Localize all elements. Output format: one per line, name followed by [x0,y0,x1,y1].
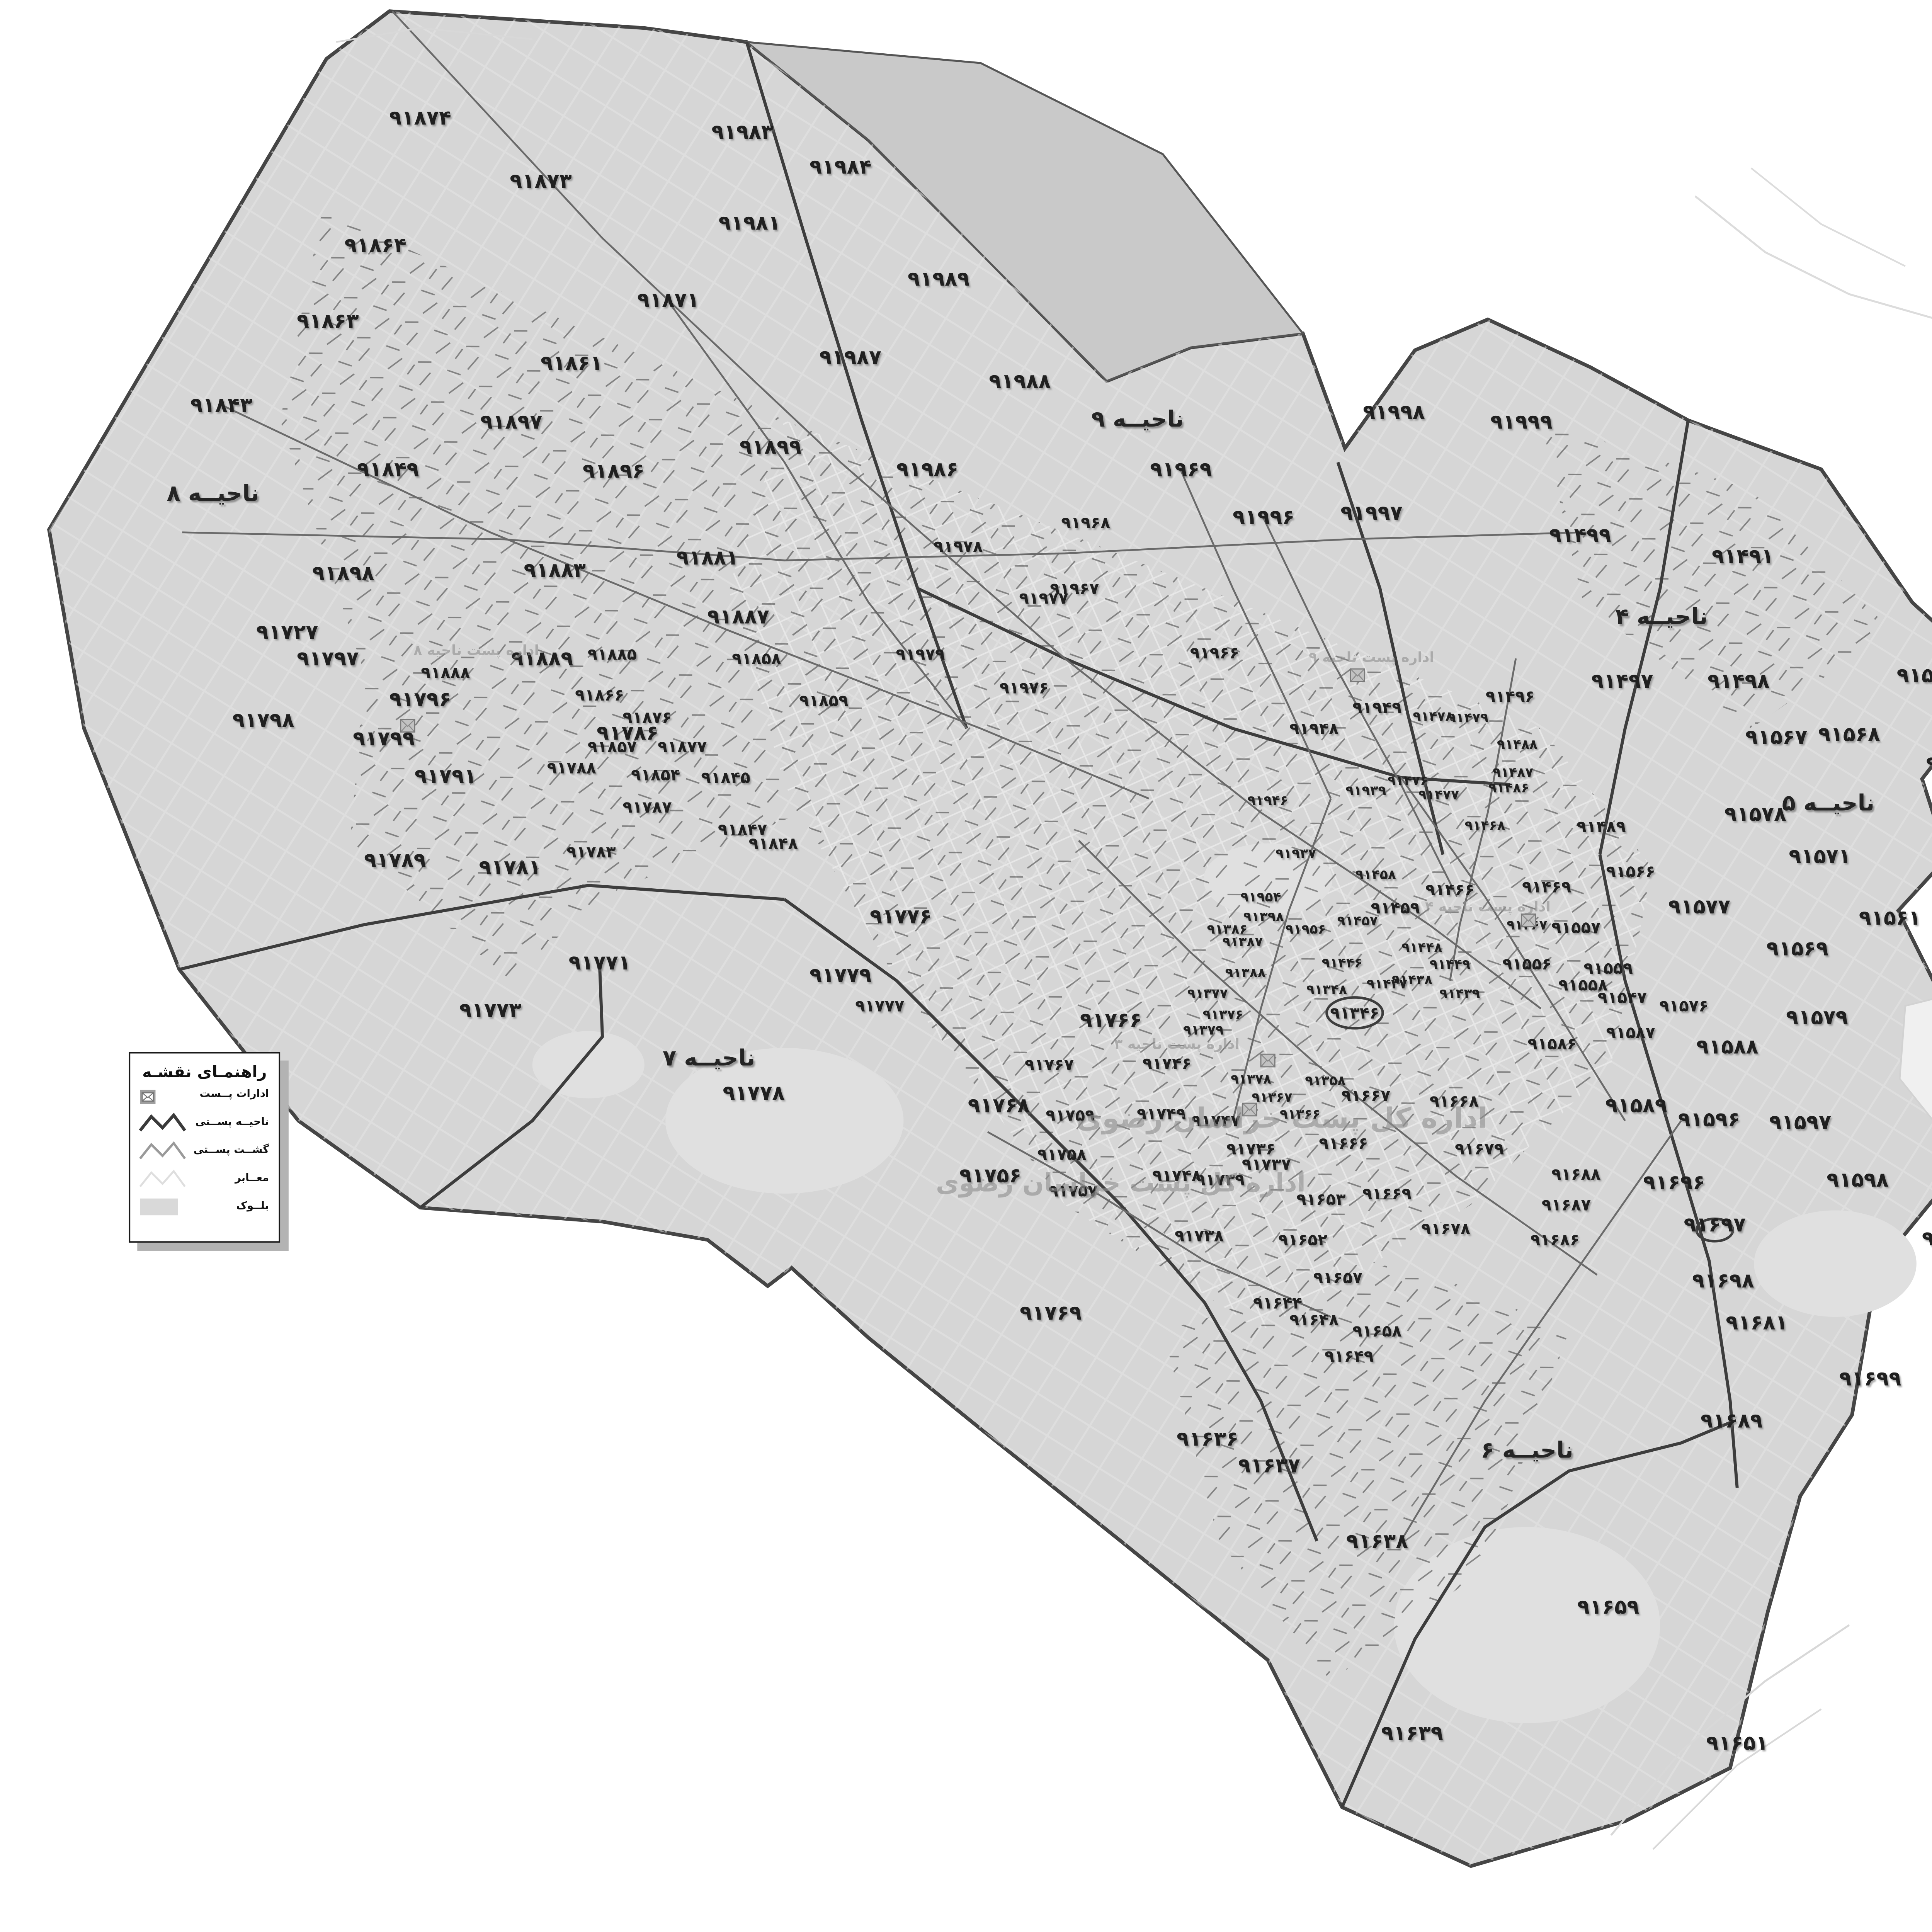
zone-code-label: ۹۱۵۸۶ [1528,1034,1577,1054]
zone-code-label: ۹۱۴۸۶ [1488,781,1529,796]
zone-code-label: ۹۱۳۷۸ [1231,1072,1271,1088]
zone-code-label: ۹۱۵۸۳ [1926,754,1932,776]
zone-code-label: ۹۱۴۴۶ [1322,956,1362,971]
zone-code-label: ۹۱۸۷۴ [389,108,451,130]
post-office-marker [399,713,416,739]
zone-code-label: ۹۱۹۷۷ [1019,588,1068,608]
zone-code-label: ۹۱۶۵۷ [1313,1268,1362,1287]
zone-code-label: ۹۱۸۹۷ [480,412,542,434]
district-boundary-line-icon [139,1112,186,1139]
zone-code-label: ۹۱۶۷۸ [1421,1219,1470,1238]
zone-code-label: ۹۱۹۷۶ [1000,678,1049,698]
zone-code-label: ۹۱۸۴۹ [357,459,419,482]
zone-code-label: ۹۱۸۹۹ [740,437,801,459]
legend-item-postal-route: گشــت پســتی [130,1138,279,1166]
zone-code-label: ۹۱۹۸۱ [718,213,780,235]
zone-code-label: ۹۱۵۶۷ [1745,727,1807,750]
zone-code-label: ۹۱۶۶۶ [1319,1133,1368,1153]
zone-code-label: ۹۱۸۸۵ [588,645,637,664]
zone-code-label: ۹۱۶۳۷ [1238,1456,1300,1478]
watermark-text: اداره پست ناحیه ۹ [1309,651,1434,666]
zone-code-label: ۹۱۹۴۶ [1248,794,1288,809]
zone-code-label: ۹۱۴۹۷ [1591,671,1653,694]
zone-code-label: ۹۱۵۶۸ [1818,724,1880,747]
zone-code-label: ۹۱۸۴۸ [749,833,798,853]
zone-code-label: ۹۱۶۸۶ [1531,1230,1580,1250]
zone-code-label: ۹۱۸۹۶ [583,461,645,483]
zone-code-label: ۹۱۶۳۸ [1346,1531,1408,1554]
zone-code-label: ۹۱۷۸۸ [547,758,596,777]
zone-code-label: ۹۱۷۲۷ [256,622,318,645]
zone-code-label: ۹۱۹۳۷ [1276,847,1316,862]
watermark-text: اداره کل پست خراسان رضوی [936,1169,1306,1199]
zone-code-label: ۹۱۵۶۶ [1606,862,1655,881]
zone-code-label: ۹۱۶۹۸ [1692,1270,1754,1293]
watermark-text: اداره پست ناحیه ۸ [413,644,539,659]
zone-code-label: ۹۱۹۹۶ [1233,507,1294,529]
map-labels-layer: ۹۱۸۷۴۹۱۸۷۳۹۱۸۶۴۹۱۸۶۳۹۱۸۴۳۹۱۸۶۱۹۱۸۹۷۹۱۸۴۹… [0,0,1932,1932]
legend-item-post-offices: ادارات پــست [130,1082,279,1110]
zone-code-label: ۹۱۷۷۷ [855,996,904,1016]
legend: راهنمـای نقشـه ادارات پــست ناحیــه پســ… [129,1052,281,1243]
zone-code-label: ۹۱۵۹۸ [1827,1170,1888,1192]
legend-title: راهنمـای نقشـه [130,1062,279,1082]
zone-code-label: ۹۱۴۹۱ [1712,546,1774,569]
zone-code-label: ۹۱۴۵۹ [1371,898,1420,918]
zone-code-label: ۹۱۵۷۷ [1668,896,1730,919]
zone-code-label: ۹۱۳۷۶ [1203,1008,1243,1024]
zone-code-label: ۹۱۵۷۸ [1725,804,1786,827]
zone-code-label: ۹۱۸۷۷ [658,737,707,757]
zone-code-label: ۹۱۴۹۸ [1708,671,1769,694]
zone-code-label: ۹۱۷۶۷ [1025,1055,1074,1075]
zone-code-label: ۹۱۹۸۷ [819,347,881,370]
zone-code-label: ۹۱۴۳۹ [1439,987,1480,1002]
zone-code-label: ۹۱۶۳۹ [1381,1723,1443,1745]
zone-code-label: ۹۱۷۶۹ [1020,1303,1082,1325]
zone-code-label: ۹۱۵۸۹ [1605,1095,1667,1118]
district-label: ناحیــه ۴ [1615,603,1708,630]
post-office-icon [139,1084,157,1111]
postal-route-line-icon [139,1140,186,1167]
zone-code-label: ۹۱۳۹۸ [1243,910,1284,925]
zone-code-label: ۹۱۴۸۷ [1493,765,1533,781]
zone-code-label: ۹۱۶۶۹ [1362,1184,1412,1204]
zone-code-label: ۹۱۷۷۶ [870,906,932,929]
zone-code-label: ۹۱۵۷۶ [1659,996,1708,1016]
zone-code-label: ۹۱۴۷۹ [1448,711,1488,726]
zone-code-label: ۹۱۶۸۸ [1551,1164,1600,1184]
zone-code-label: ۹۱۹۷۹ [896,645,945,664]
zone-code-label: ۹۱۸۵۸ [732,649,781,668]
zone-code-label: ۹۱۶۴۹ [1325,1346,1374,1366]
zone-code-label: ۹۱۹۵۶ [1285,922,1326,938]
post-office-marker [1259,1047,1276,1074]
zone-code-label: ۹۱۹۵۴ [1240,890,1281,906]
zone-code-label: ۹۱۹۶۹ [1150,459,1212,482]
zone-code-label: ۹۱۳۴۶ [1330,1003,1379,1023]
zone-code-label: ۹۱۷۴۶ [1142,1053,1191,1073]
zone-code-label: ۹۱۴۸۹ [1577,817,1626,837]
watermark-text: اداره کل پست خراسان رضوی [1077,1101,1488,1135]
zone-code-label: ۹۱۴۶۸ [1465,819,1505,834]
zone-code-label: ۹۱۳۴۸ [1306,983,1347,998]
district-label: ناحیــه ۸ [167,480,259,507]
post-office-marker [1241,1096,1258,1123]
zone-code-label: ۹۱۶۸۹ [1701,1411,1762,1433]
zone-code-label: ۹۱۸۵۹ [799,690,848,710]
zone-code-label: ۹۱۷۵۸ [1037,1145,1087,1164]
zone-code-label: ۹۱۸۶۴ [344,235,406,258]
zone-code-label: ۹۱۸۷۱ [637,290,699,312]
zone-code-label: ۹۱۹۹۸ [1363,402,1425,425]
zone-code-label: ۹۱۹۸۶ [896,459,958,482]
zone-code-label: ۹۱۵۸۷ [1606,1023,1655,1043]
zone-code-label: ۹۱۶۸۱ [1726,1313,1787,1335]
zone-code-label: ۹۱۸۸۷ [707,607,769,629]
zone-code-label: ۹۱۹۶۶ [1190,643,1239,663]
zone-code-label: ۹۱۹۹۹ [1490,412,1552,434]
zone-code-label: ۹۱۸۹۸ [312,563,374,585]
zone-code-label: ۹۱۴۴۸ [1401,941,1442,956]
zone-code-label: ۹۱۴۷۷ [1418,788,1459,803]
zone-code-label: ۹۱۷۶۶ [1080,1010,1142,1032]
zone-code-label: ۹۱۷۶۸ [968,1095,1030,1118]
street-line-icon [139,1168,186,1195]
zone-code-label: ۹۱۷۹۶ [389,689,451,712]
zone-code-label: ۹۱۴۹۶ [1486,687,1535,706]
zone-code-label: ۹۱۸۶۶ [575,685,624,705]
zone-code-label: ۹۱۷۸۷ [622,797,672,817]
zone-code-label: ۹۱۴۶۹ [1522,877,1571,897]
zone-code-label: ۹۱۴۷۸ [1413,709,1453,725]
zone-code-label: ۹۱۷۳۸ [1175,1226,1224,1245]
zone-code-label: ۹۱۷۸۳ [566,842,616,862]
zone-code-label: ۹۱۶۵۲ [1278,1230,1327,1250]
zone-code-label: ۹۱۴۴۹ [1430,957,1470,973]
zone-code-label: ۹۱۴۶۶ [1425,880,1475,900]
district-label: ناحیــه ۵ [1782,789,1875,816]
legend-item-postal-district: ناحیــه پســتی [130,1109,279,1138]
zone-code-label: ۹۱۹۸۳ [711,122,773,144]
zone-code-label: ۹۱۵۶۹ [1766,939,1828,961]
zone-code-label: ۹۱۴۷۶ [1388,774,1428,789]
zone-code-label: ۹۱۳۵۸ [1305,1074,1345,1089]
zone-code-label: ۹۱۶۵۸ [1352,1321,1401,1341]
zone-code-label: ۹۱۹۶۸ [1061,513,1110,532]
zone-code-label: ۹۱۶۵۹ [1577,1597,1639,1619]
zone-code-label: ۹۱۶۷۹ [1455,1139,1504,1159]
zone-code-label: ۹۱۷۸۶ [597,723,658,745]
zone-code-label: ۹۱۸۷۳ [510,171,571,193]
zone-code-label: ۹۱۸۴۳ [190,395,252,417]
zone-code-label: ۹۱۸۴۵ [701,768,750,787]
post-office-marker [1520,907,1537,934]
zone-code-label: ۹۱۶۳۶ [1177,1429,1238,1451]
zone-code-label: ۹۱۴۵۸ [1355,868,1396,883]
zone-code-label: ۹۱۵۹۹ [1922,1229,1932,1251]
zone-code-label: ۹۱۶۴۸ [1289,1310,1338,1330]
zone-code-label: ۹۱۵۹۶ [1678,1109,1740,1132]
zone-code-label: ۹۱۶۵۱ [1706,1733,1768,1755]
zone-code-label: ۹۱۵۶۱ [1859,908,1921,930]
zone-code-label: ۹۱۳۸۸ [1225,966,1266,981]
zone-code-label: ۹۱۵۷۱ [1789,846,1850,869]
zone-code-label: ۹۱۸۶۱ [541,353,602,376]
zone-code-label: ۹۱۹۸۴ [810,157,871,179]
zone-code-label: ۹۱۹۹۷ [1340,503,1402,526]
zone-code-label: ۹۱۸۵۴ [631,765,680,785]
zone-code-label: ۹۱۸۶۳ [297,311,359,333]
watermark-text: اداره پست ناحیه ۳ [1114,1037,1240,1053]
zone-code-label: ۹۱۹۷۸ [934,537,983,556]
district-label: ناحیــه ۷ [663,1044,755,1071]
zone-code-label: ۹۱۷۹۷ [297,649,359,671]
zone-code-label: ۹۱۹۳۹ [1345,784,1386,799]
zone-code-label: ۹۱۸۸۸ [421,663,470,682]
legend-item-streets: معــابر [130,1165,279,1194]
zone-code-label: ۹۱۵۹۷ [1769,1112,1831,1135]
zone-code-label: ۹۱۹۴۸ [1289,719,1338,738]
district-label: ناحیــه ۶ [1481,1437,1573,1463]
zone-code-label: ۹۱۶۹۷ [1684,1214,1745,1237]
zone-code-label: ۹۱۴۵۷ [1337,914,1378,930]
zone-code-label: ۹۱۵۷۹ [1786,1007,1848,1030]
zone-code-label: ۹۱۴۳۷ [1367,977,1407,993]
zone-code-label: ۹۱۷۹۸ [232,710,294,733]
zone-code-label: ۹۱۳۷۷ [1187,987,1228,1002]
zone-code-label: ۹۱۳۸۷ [1222,935,1263,951]
zone-code-label: ۹۱۷۸۹ [364,850,426,873]
post-office-marker [1349,662,1366,689]
zone-code-label: ۹۱۴۹۹ [1549,526,1611,548]
zone-code-label: ۹۱۵۵۷ [1551,918,1600,937]
zone-code-label: ۹۱۸۸۱ [677,548,738,570]
zone-code-label: ۹۱۷۹۱ [415,766,476,789]
zone-code-label: ۹۱۷۷۹ [810,965,871,988]
zone-code-label: ۹۱۵۵۶ [1502,954,1551,974]
zone-code-label: ۹۱۶۹۶ [1643,1173,1705,1195]
zone-code-label: ۹۱۵۸۸ [1696,1037,1758,1059]
postal-map-canvas: ۹۱۸۷۴۹۱۸۷۳۹۱۸۶۴۹۱۸۶۳۹۱۸۴۳۹۱۸۶۱۹۱۸۹۷۹۱۸۴۹… [0,0,1932,1932]
zone-code-label: ۹۱۸۸۳ [524,560,585,583]
zone-code-label: ۹۱۷۸۱ [479,857,541,880]
block-fill-icon [139,1196,181,1223]
zone-code-label: ۹۱۵۸۱ [1897,665,1932,688]
legend-item-block: بلــوک [130,1194,279,1222]
zone-code-label: ۹۱۹۴۹ [1352,698,1401,718]
zone-code-label: ۹۱۶۹۹ [1839,1369,1901,1391]
zone-code-label: ۹۱۹۸۸ [989,371,1051,394]
zone-code-label: ۹۱۷۷۱ [569,952,631,975]
zone-code-label: ۹۱۶۸۷ [1542,1195,1591,1215]
zone-code-label: ۹۱۴۸۸ [1497,738,1537,753]
zone-code-label: ۹۱۷۷۸ [723,1083,784,1105]
zone-code-label: ۹۱۹۸۹ [908,269,969,291]
zone-code-label: ۹۱۷۷۳ [459,1000,521,1023]
zone-code-label: ۹۱۵۴۷ [1598,988,1647,1007]
district-label: ناحیــه ۹ [1091,406,1184,432]
zone-code-label: ۹۱۳۷۹ [1183,1024,1224,1039]
